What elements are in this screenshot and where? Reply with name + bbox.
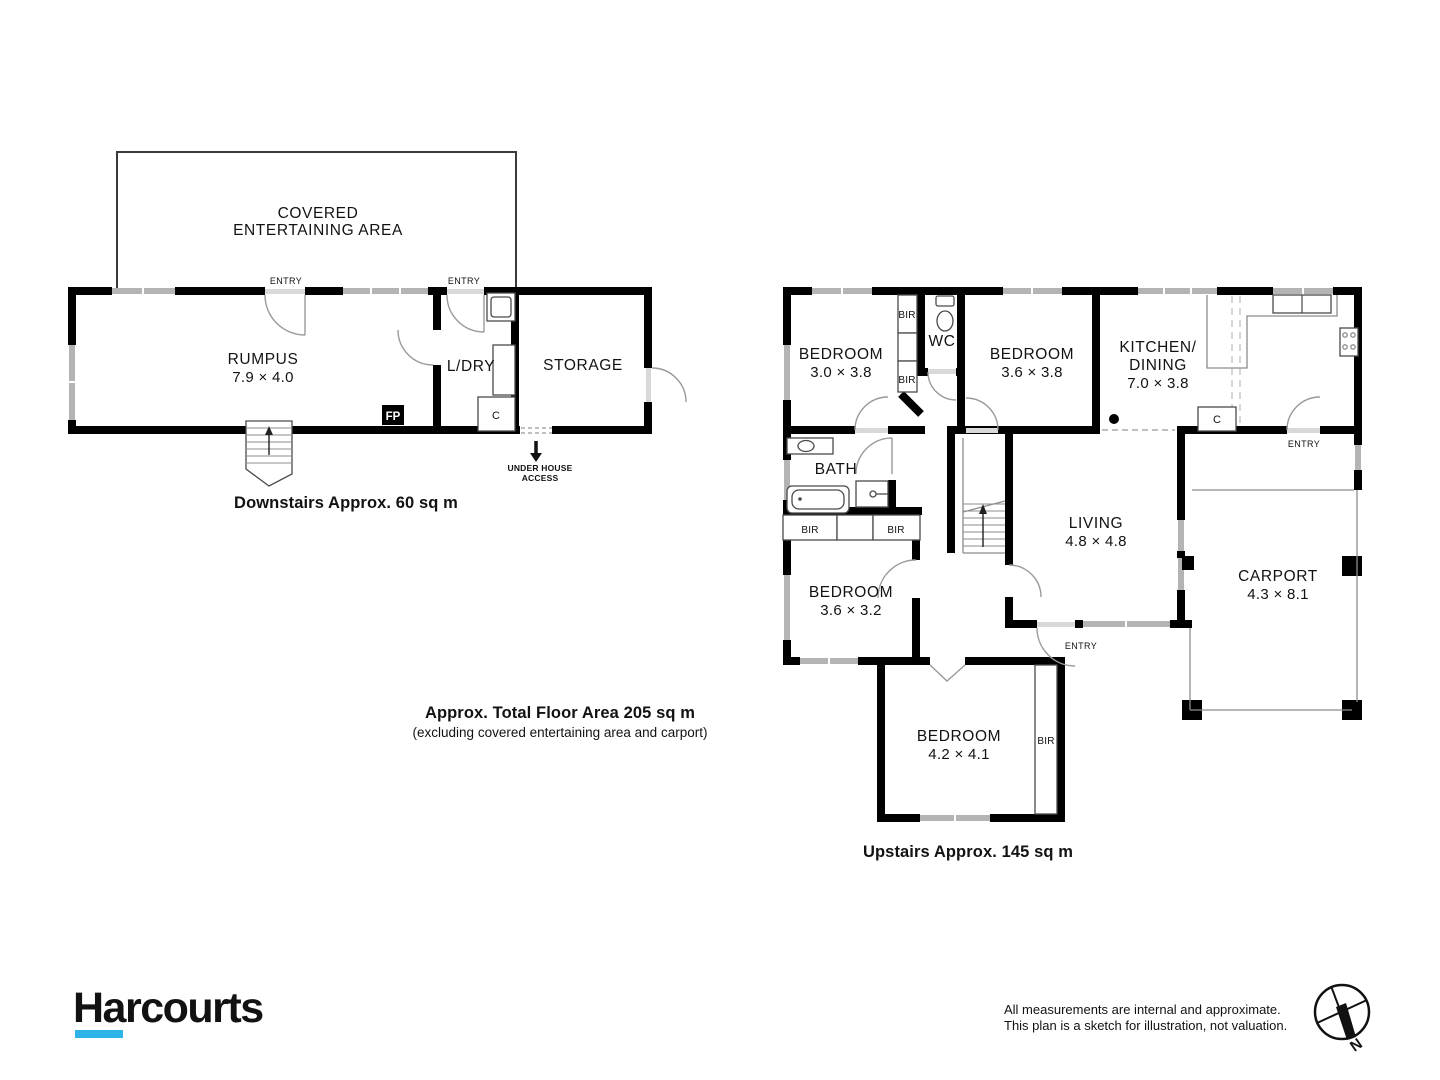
- compass-icon: N: [1315, 985, 1369, 1055]
- svg-text:ACCESS: ACCESS: [522, 473, 559, 483]
- bir-label-1: BIR: [898, 310, 915, 321]
- entry-label-rumpus: ENTRY: [270, 276, 302, 286]
- laundry-counter: [493, 345, 515, 395]
- svg-text:UNDER HOUSE: UNDER HOUSE: [507, 463, 572, 473]
- column-dot: [1109, 414, 1119, 424]
- kitchen-closet-label: C: [1213, 414, 1221, 426]
- downstairs-doors: [265, 295, 686, 402]
- bir-label-3: BIR: [801, 525, 818, 536]
- upstairs-stairs-icon: [963, 438, 1005, 553]
- kitchen-label2: DINING: [1129, 357, 1187, 374]
- total-area-note: (excluding covered entertaining area and…: [413, 725, 708, 740]
- bedroom2-label: BEDROOM: [990, 346, 1074, 363]
- bir-label-5: BIR: [1037, 736, 1054, 747]
- kitchen-dims: 7.0 × 3.8: [1127, 375, 1189, 392]
- upstairs-plan: BEDROOM 3.0 × 3.8 BIR BIR WC BEDROOM 3.6…: [783, 287, 1362, 861]
- storage-label: STORAGE: [543, 357, 623, 374]
- carport-structure: [1182, 490, 1362, 720]
- covered-area-label2: ENTERTAINING AREA: [233, 222, 403, 239]
- wc-label: WC: [928, 333, 955, 350]
- living-label: LIVING: [1069, 515, 1123, 532]
- floorplan-drawing: COVERED ENTERTAINING AREA: [0, 0, 1440, 1080]
- rumpus-dims: 7.9 × 4.0: [232, 369, 294, 386]
- total-area-label: Approx. Total Floor Area 205 sq m: [425, 704, 695, 722]
- laundry-tub-basin: [491, 297, 511, 317]
- toilet-icon: [936, 296, 954, 331]
- floorplan-page: COVERED ENTERTAINING AREA: [0, 0, 1440, 1080]
- footer: Harcourts All measurements are internal …: [73, 984, 1369, 1055]
- bath-label: BATH: [815, 461, 858, 478]
- bedroom4-dims: 4.2 × 4.1: [928, 746, 990, 763]
- stove-icon: [1340, 328, 1358, 356]
- bedroom2-dims: 3.6 × 3.8: [1001, 364, 1063, 381]
- upstairs-caption: Upstairs Approx. 145 sq m: [863, 843, 1073, 861]
- total-area-summary: Approx. Total Floor Area 205 sq m (exclu…: [413, 704, 708, 740]
- bedroom1-label: BEDROOM: [799, 346, 883, 363]
- fireplace-label: FP: [386, 411, 401, 423]
- harcourts-logo: Harcourts: [73, 984, 263, 1032]
- bedroom1-dims: 3.0 × 3.8: [810, 364, 872, 381]
- disclaimer-line2: This plan is a sketch for illustration, …: [1004, 1018, 1287, 1033]
- covered-area-label: COVERED: [278, 205, 359, 222]
- living-dims: 4.8 × 4.8: [1065, 533, 1127, 550]
- laundry-closet-label: C: [492, 410, 500, 422]
- entry-label-kitchen: ENTRY: [1288, 439, 1320, 449]
- disclaimer-line1: All measurements are internal and approx…: [1004, 1002, 1281, 1017]
- bedroom3-label: BEDROOM: [809, 584, 893, 601]
- downstairs-stairs-icon: [246, 421, 292, 486]
- bir-label-2: BIR: [898, 375, 915, 386]
- bedroom4-label: BEDROOM: [917, 728, 1001, 745]
- entry-label-living: ENTRY: [1065, 641, 1097, 651]
- downstairs-caption: Downstairs Approx. 60 sq m: [234, 494, 458, 512]
- under-house-access: UNDER HOUSE ACCESS: [507, 441, 572, 483]
- rumpus-label: RUMPUS: [228, 351, 299, 368]
- laundry-label: L/DRY: [447, 358, 495, 375]
- entry-label-laundry: ENTRY: [448, 276, 480, 286]
- bir-label-4: BIR: [887, 525, 904, 536]
- logo-underline: [75, 1030, 123, 1038]
- carport-label: CARPORT: [1238, 568, 1318, 585]
- kitchen-label: KITCHEN/: [1119, 339, 1196, 356]
- under-house-access-gap: [520, 426, 552, 434]
- downstairs-plan: COVERED ENTERTAINING AREA: [68, 152, 686, 512]
- carport-dims: 4.3 × 8.1: [1247, 586, 1309, 603]
- bedroom3-dims: 3.6 × 3.2: [820, 602, 882, 619]
